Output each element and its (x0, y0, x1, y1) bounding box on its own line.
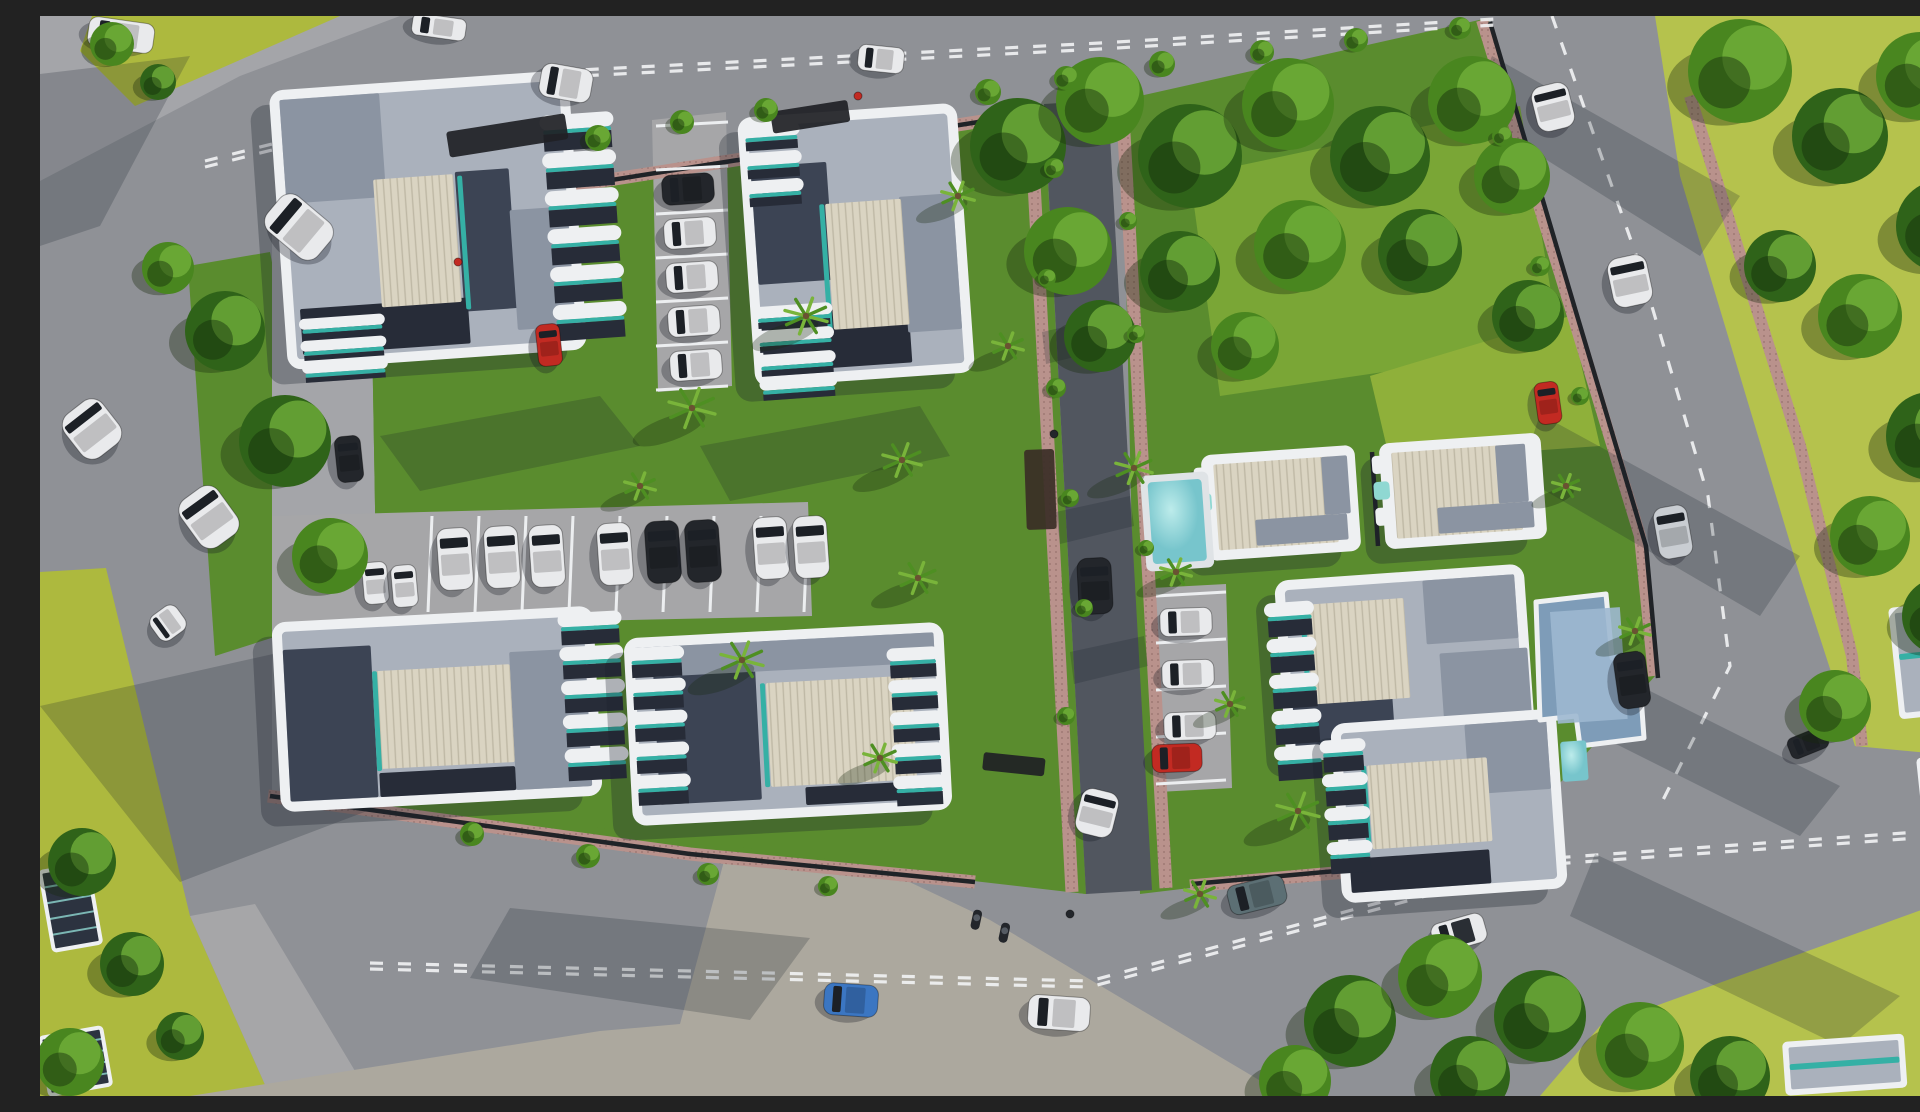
villa-roof-section (1495, 444, 1529, 504)
windshield (756, 526, 785, 538)
palm-trunk (877, 755, 883, 761)
balcony-gap (1330, 857, 1371, 875)
tree-shade (1346, 37, 1358, 49)
tree-shade (1252, 49, 1264, 61)
balcony-step (891, 742, 944, 758)
tree-shade (144, 77, 162, 95)
tree-shade (1573, 393, 1582, 402)
villa-balcony-step (1375, 507, 1392, 526)
palm-trunk (739, 657, 745, 663)
car-top-road-4 (847, 43, 905, 82)
tree-shade (699, 871, 710, 882)
balcony-gap (893, 727, 940, 742)
roof-deck-texture (1367, 757, 1493, 849)
pergola-inner-road (1024, 449, 1057, 530)
tree (571, 844, 600, 869)
tree-shade (1056, 75, 1068, 87)
car-roof (1539, 398, 1559, 415)
car-roof (690, 352, 710, 377)
tree-shade (1121, 218, 1130, 227)
apartment-block-5-lower (1318, 708, 1568, 904)
balcony-gap (1268, 618, 1313, 637)
car-roof (875, 49, 894, 71)
apartment-block-4 (623, 622, 952, 826)
pool-water (1147, 479, 1207, 565)
villa-balcony-step (1371, 455, 1388, 474)
tree-shade (106, 955, 138, 987)
balcony-gap (895, 759, 942, 774)
car-roof (1180, 611, 1199, 634)
tree-shade (756, 107, 768, 119)
roof-deck-texture (825, 199, 910, 330)
car-roof (1052, 999, 1076, 1028)
tree (1339, 28, 1368, 53)
tree (1445, 17, 1471, 40)
tree-shade (578, 853, 590, 865)
palm-trunk (915, 575, 921, 581)
tree-shade (1065, 89, 1109, 133)
windshield (600, 532, 629, 544)
tree (1049, 66, 1078, 91)
tree-shade (462, 831, 474, 843)
aerial-site-render: Aerial 3D architectural render of a resi… (40, 16, 1920, 1096)
pedestrian-3 (1050, 430, 1058, 438)
tree-shade (161, 1029, 185, 1053)
tree (665, 110, 694, 135)
balcony-gap (638, 790, 689, 806)
tree-shade (1605, 1034, 1649, 1078)
windshield (1080, 566, 1108, 576)
balcony-gap (1270, 654, 1315, 673)
site-plan-svg (40, 16, 1920, 1096)
apartment-block-2 (737, 103, 976, 402)
balcony-step (886, 646, 939, 662)
roof-deck-texture (1306, 598, 1411, 705)
roof-section (279, 93, 386, 204)
car-roof (1619, 674, 1647, 696)
tree (1785, 670, 1871, 744)
palm-trunk (1005, 343, 1011, 349)
tree-shade (1140, 546, 1148, 554)
windshield (796, 525, 825, 537)
tree-shade (1802, 123, 1850, 171)
tree (169, 291, 265, 373)
tree (1144, 51, 1175, 78)
tree (1038, 57, 1144, 147)
roof-deck-texture (376, 664, 515, 769)
windshield (832, 986, 842, 1013)
tree-shade (1340, 142, 1390, 192)
balcony-gap (632, 662, 683, 678)
terrace-pool (1560, 740, 1589, 782)
palm-trunk (803, 313, 809, 319)
car-roof (339, 454, 361, 472)
windshield (532, 534, 561, 546)
tree-shade (1494, 133, 1504, 143)
swimming-pool (1140, 471, 1215, 572)
car-roof (395, 582, 415, 598)
windshield (1170, 663, 1179, 685)
balcony-gap (633, 694, 684, 710)
palm-trunk (1632, 628, 1638, 634)
villa-1 (1193, 445, 1362, 562)
windshield (440, 537, 469, 549)
windshield (670, 178, 680, 203)
tree-shade (1406, 964, 1448, 1006)
balcony-step (890, 710, 943, 726)
tree-shade (1499, 306, 1535, 342)
tree-shade (1148, 141, 1200, 193)
white-building-east-b (1916, 753, 1920, 879)
white-frame (1916, 753, 1920, 879)
car-left-road-2 (49, 393, 131, 476)
villa-2 (1371, 432, 1548, 550)
tree (132, 242, 194, 295)
tree-shade (980, 133, 1028, 181)
palm-trunk (1563, 483, 1569, 489)
pedestrian-4 (1066, 910, 1074, 918)
tree-shade (1059, 713, 1068, 722)
tree-shade (588, 134, 601, 147)
car-roof (1081, 581, 1110, 601)
car-roof (441, 553, 470, 576)
tree-shade (1063, 495, 1072, 504)
car-roof (601, 548, 630, 571)
windshield (1160, 747, 1169, 769)
car-roof (845, 987, 866, 1014)
tree (1115, 212, 1137, 230)
palm-trunk (1131, 465, 1137, 471)
tree-shade (300, 545, 338, 583)
car-roof (682, 176, 702, 201)
roof-section (283, 645, 379, 801)
windshield (1037, 998, 1049, 1027)
tree-shade (672, 119, 684, 131)
tree-shade (1077, 605, 1086, 614)
tree-shade (1071, 326, 1107, 362)
palm-trunk (689, 405, 695, 411)
tree-shade (55, 852, 89, 886)
balcony-gap (1326, 789, 1367, 807)
tree-shade (1046, 165, 1056, 175)
white-building-bottom-right (1782, 1033, 1907, 1095)
tree-shade (1048, 385, 1058, 395)
balcony-gap (1273, 690, 1318, 709)
car-roof (533, 550, 562, 573)
car-roof (433, 18, 454, 37)
balcony-gap (1328, 823, 1369, 841)
villa-roof-section (1321, 455, 1351, 515)
palm-trunk (1295, 808, 1301, 814)
tree (1578, 1002, 1684, 1092)
balcony-gap (1275, 726, 1320, 745)
palm-trunk (1197, 891, 1203, 897)
pedestrian-1 (854, 92, 862, 100)
balcony-gap (892, 695, 939, 710)
tree (693, 863, 719, 886)
roof-deck-texture (373, 174, 462, 307)
car-roof (540, 341, 559, 357)
car-roof (757, 542, 786, 565)
car-roof (488, 551, 517, 574)
windshield (676, 310, 686, 335)
tree-shade (1218, 336, 1252, 370)
tree-shade (43, 1052, 77, 1086)
windshield (688, 529, 717, 541)
tree-shade (978, 88, 991, 101)
tree-shade (1503, 1003, 1549, 1049)
car-roof (686, 264, 706, 289)
tree (749, 98, 778, 123)
car-roof (366, 579, 386, 595)
palm-trunk (955, 193, 961, 199)
tree-shade (1040, 275, 1049, 284)
windshield (1168, 611, 1177, 633)
tree (970, 79, 1001, 106)
car-roof (649, 546, 678, 569)
tree (1245, 40, 1274, 65)
balcony-gap (890, 663, 937, 678)
car-roof (688, 308, 708, 333)
car-roof (689, 545, 718, 568)
car-top-road-2 (401, 16, 467, 49)
balcony-gap (897, 791, 944, 806)
tree-shade (1451, 25, 1462, 36)
balcony-step (893, 774, 946, 790)
tree-shade (1751, 256, 1787, 292)
tree-shade (1437, 88, 1481, 132)
windshield (674, 266, 684, 291)
car-right-road-2 (1596, 252, 1656, 318)
windshield (487, 535, 516, 547)
tree-shade (1152, 60, 1165, 73)
tree-shade (1826, 304, 1868, 346)
tree (1224, 58, 1334, 152)
car-roof (1182, 663, 1201, 686)
villa-balcony-step (1373, 481, 1390, 500)
apartment-block-3 (271, 604, 630, 812)
tree-shade (1386, 239, 1428, 281)
tree-shade (1482, 165, 1520, 203)
palm-trunk (1173, 569, 1179, 575)
tree-shade (820, 883, 830, 893)
tree (1381, 934, 1482, 1020)
palm-trunk (1227, 701, 1233, 707)
tree-shade (1806, 696, 1842, 732)
windshield (678, 354, 688, 379)
pedestrian-2 (454, 258, 462, 266)
tree-shade (147, 261, 173, 287)
tree-shade (1251, 91, 1297, 137)
tree-shade (1263, 233, 1309, 279)
balcony-step (888, 678, 941, 694)
car-roof (797, 541, 826, 564)
palm-trunk (899, 457, 905, 463)
balcony-gap (635, 726, 686, 742)
tree-shade (1129, 331, 1138, 340)
tree-shade (1838, 525, 1878, 565)
windshield (1172, 715, 1181, 737)
car-roof (684, 220, 704, 245)
tree-shade (248, 428, 294, 474)
balcony-gap (1323, 755, 1364, 773)
tree-shade (1313, 1008, 1359, 1054)
tree-shade (1148, 260, 1188, 300)
car-roof (1172, 747, 1191, 770)
tree-shade (1698, 56, 1750, 108)
tree-shade (193, 320, 233, 360)
tree-shade (1532, 263, 1542, 273)
balcony-gap (637, 758, 688, 774)
tree-shade (94, 38, 116, 60)
windshield (672, 222, 682, 247)
car-left-road-4 (139, 601, 194, 655)
windshield (648, 530, 677, 542)
palm-trunk (637, 483, 643, 489)
roof-section (1422, 574, 1518, 644)
